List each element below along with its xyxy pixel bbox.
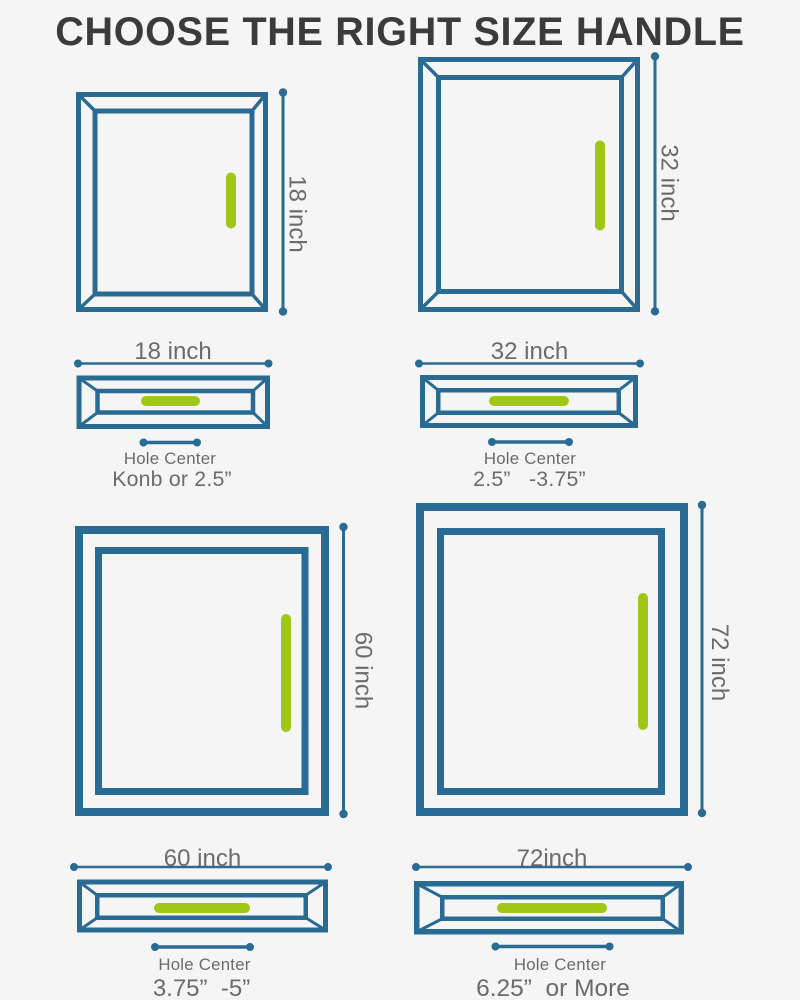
svg-text:Hole Center: Hole Center [124, 449, 216, 468]
svg-text:Hole Center: Hole Center [158, 955, 250, 974]
svg-text:32 inch: 32 inch [491, 338, 568, 365]
svg-text:6.25” or More: 6.25” or More [476, 975, 630, 1000]
svg-text:Konb or 2.5”: Konb or 2.5” [112, 467, 232, 491]
svg-text:60 inch: 60 inch [350, 632, 377, 709]
svg-text:Hole Center: Hole Center [484, 449, 576, 468]
svg-text:18 inch: 18 inch [134, 338, 211, 365]
svg-text:18 inch: 18 inch [284, 175, 311, 252]
svg-text:Hole Center: Hole Center [514, 955, 606, 974]
svg-text:3.75” -5”: 3.75” -5” [153, 975, 250, 1000]
svg-text:32 inch: 32 inch [656, 144, 683, 221]
svg-text:2.5” -3.75”: 2.5” -3.75” [473, 467, 586, 491]
svg-text:CHOOSE THE RIGHT SIZE HANDLE: CHOOSE THE RIGHT SIZE HANDLE [55, 10, 745, 54]
svg-text:72 inch: 72 inch [706, 624, 733, 701]
